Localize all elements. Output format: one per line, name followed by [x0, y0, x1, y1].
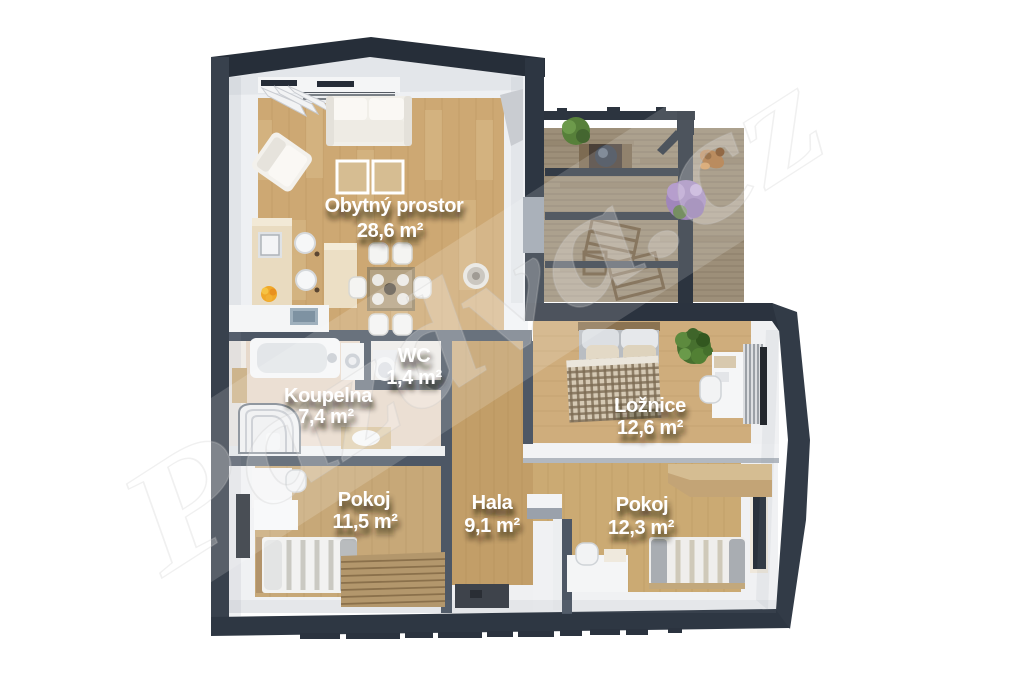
svg-text:Hala: Hala [472, 492, 514, 514]
svg-text:12,6 m²: 12,6 m² [617, 417, 684, 439]
svg-text:11,5 m²: 11,5 m² [332, 511, 398, 533]
svg-text:WC: WC [398, 345, 431, 367]
svg-text:Obytný prostor: Obytný prostor [325, 195, 464, 217]
svg-text:9,1 m²: 9,1 m² [464, 515, 520, 537]
svg-text:12,3 m²: 12,3 m² [608, 517, 675, 539]
svg-text:Pokoj: Pokoj [338, 489, 390, 511]
svg-text:7,4 m²: 7,4 m² [298, 406, 354, 428]
svg-text:Koupelna: Koupelna [284, 385, 373, 407]
svg-text:Ložnice: Ložnice [614, 395, 686, 417]
svg-text:28,6 m²: 28,6 m² [357, 220, 424, 242]
svg-text:1,4 m²: 1,4 m² [386, 367, 442, 389]
svg-text:Pokoj: Pokoj [616, 494, 668, 516]
